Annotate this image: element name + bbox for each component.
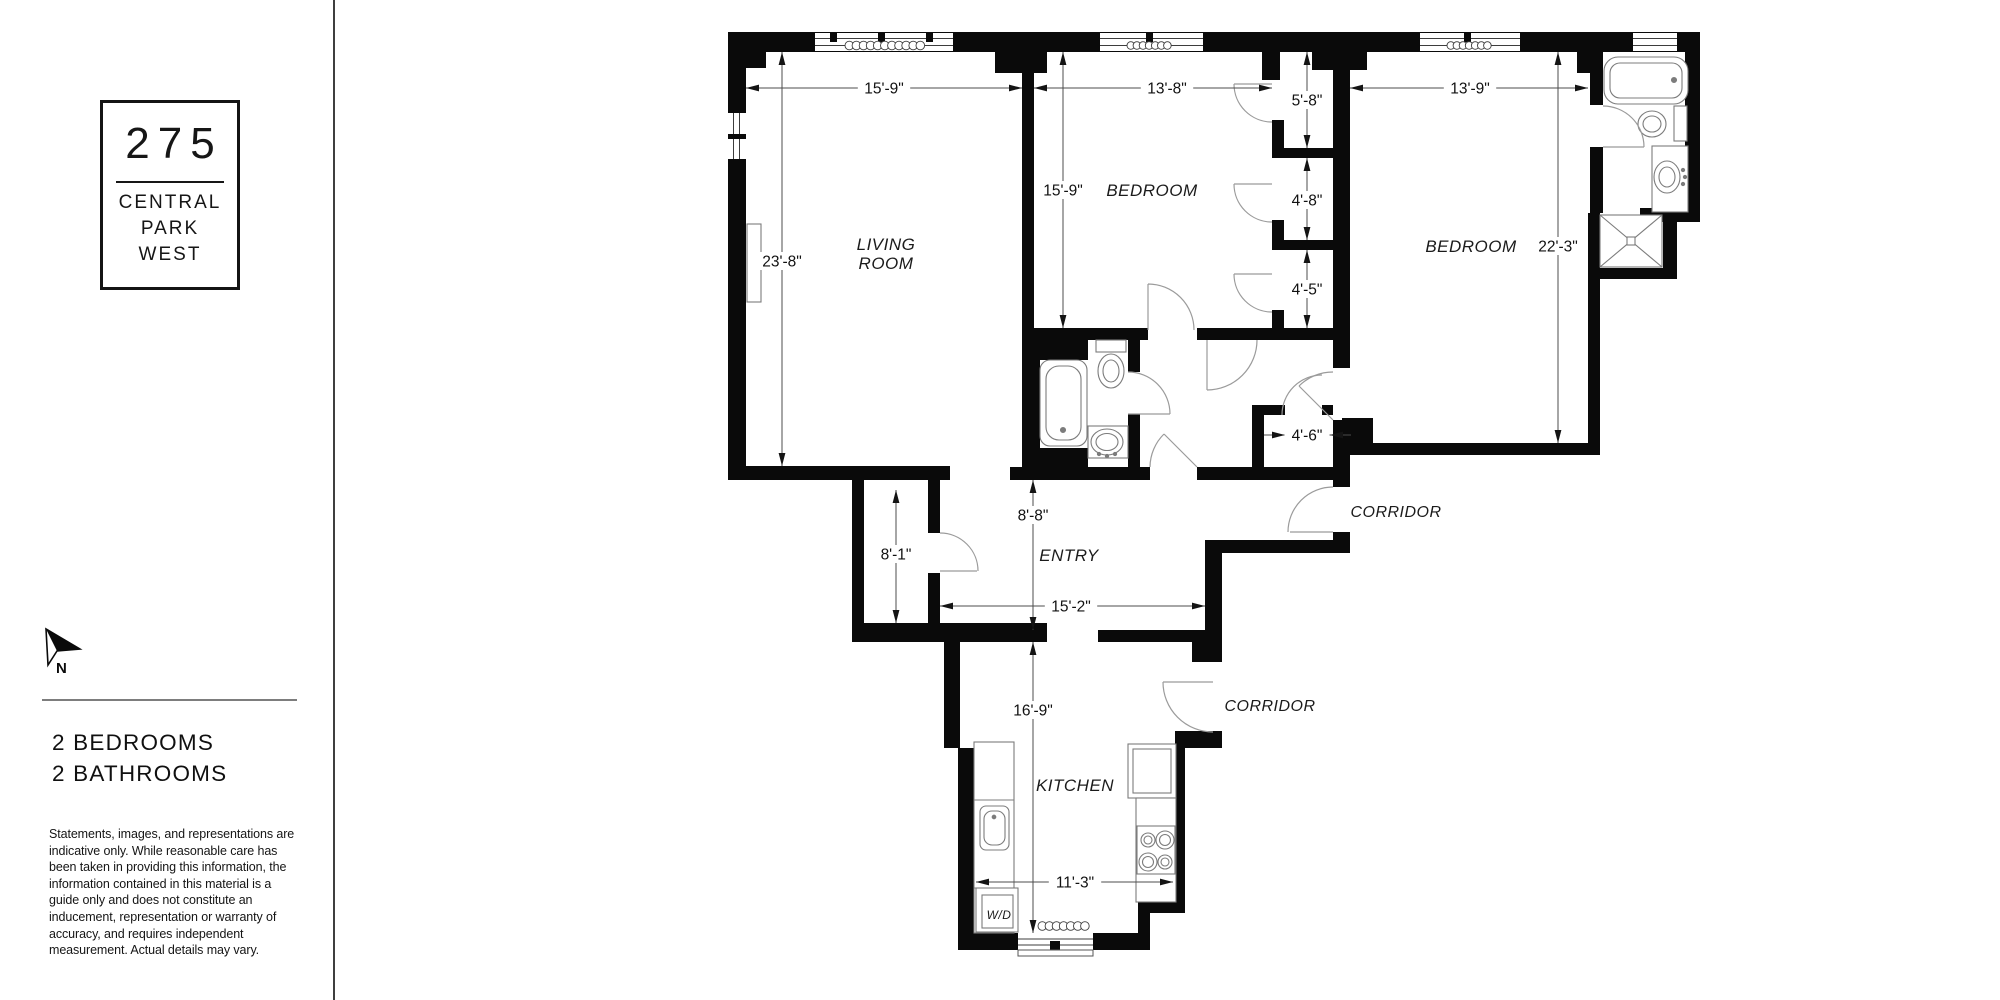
dimension-bedroom2-width: 13'-9" — [1350, 79, 1588, 98]
radiator-coil — [1038, 922, 1089, 931]
dimension-bedroom1-depth: 15'-9" — [1037, 52, 1089, 328]
dimension-label: 4'-8" — [1292, 193, 1323, 210]
dimension-living-room-depth: 23'-8" — [756, 52, 808, 466]
room-label-living-room: LIVINGROOM — [857, 235, 916, 273]
room-label-bedroom-1: BEDROOM — [1106, 181, 1198, 200]
door-main-entry — [1288, 487, 1333, 532]
dimension-label: 15'-9" — [864, 81, 903, 98]
dimension-bedroom2-depth: 22'-3" — [1532, 52, 1584, 443]
dimension-label: 15'-9" — [1043, 183, 1082, 200]
fixtures — [747, 57, 1688, 933]
room-label-entry: ENTRY — [1039, 546, 1100, 565]
radiator-coil — [845, 41, 925, 50]
toilet — [1096, 340, 1126, 352]
radiator-coil — [1127, 42, 1171, 50]
room-label-corridor-east: CORRIDOR — [1350, 504, 1441, 521]
walls — [728, 32, 1700, 950]
door-hall-passage — [1150, 434, 1197, 467]
dimension-label: 11'-3" — [1056, 875, 1094, 892]
dimension-label: 22'-3" — [1538, 239, 1577, 256]
dimension-label: 13'-8" — [1147, 81, 1186, 98]
door-bathroom1 — [1128, 372, 1170, 414]
dimension-label: 23'-8" — [762, 254, 801, 271]
room-label-washer-dryer: W/D — [987, 908, 1012, 922]
room-label-corridor-south: CORRIDOR — [1224, 698, 1315, 715]
room-label-kitchen: KITCHEN — [1036, 776, 1114, 795]
dimension-entry-closet-depth: 8'-1" — [874, 490, 919, 623]
dimension-closet2-depth: 4'-8" — [1285, 158, 1330, 240]
door-entry-closet — [940, 533, 978, 571]
shower — [1600, 215, 1662, 267]
door-closet4 — [1282, 375, 1322, 415]
floorplan-drawing: 15'-9"13'-8"13'-9"5'-8"4'-8"4'-5"15'-9"2… — [0, 0, 2000, 1000]
dimension-label: 4'-5" — [1292, 282, 1323, 299]
door-bedroom1 — [1148, 284, 1194, 330]
dimension-label: 8'-8" — [1018, 508, 1049, 525]
door-closet3 — [1234, 274, 1272, 312]
dimension-label: 5'-8" — [1292, 93, 1323, 110]
radiator-coil — [1447, 42, 1491, 50]
door-service-entry — [1163, 682, 1213, 732]
dimension-label: 8'-1" — [881, 547, 912, 564]
toilet — [1674, 106, 1687, 141]
refrigerator — [1128, 744, 1176, 798]
dimension-label: 4'-6" — [1292, 428, 1323, 445]
room-label-bedroom-2: BEDROOM — [1425, 237, 1517, 256]
dimension-closet3-depth: 4'-5" — [1285, 250, 1330, 328]
dimension-living-room-width: 15'-9" — [746, 79, 1022, 98]
dimension-label: 13'-9" — [1450, 81, 1489, 98]
door-hallway — [1207, 340, 1257, 390]
door-closet1 — [1234, 84, 1272, 122]
dimension-label: 15'-2" — [1051, 599, 1090, 616]
window-mullions — [728, 32, 1471, 950]
dimension-label: 16'-9" — [1013, 703, 1052, 720]
stove — [1136, 798, 1176, 902]
door-closet2 — [1234, 184, 1272, 222]
floorplan-flyer: { "sidebar": { "logo": { "number": "275"… — [0, 0, 2000, 1000]
kitchen-window-sill — [1018, 950, 1093, 956]
dimension-bedroom1-width: 13'-8" — [1034, 79, 1272, 98]
dimension-entry-width: 15'-2" — [940, 597, 1205, 616]
windows — [728, 32, 1677, 956]
